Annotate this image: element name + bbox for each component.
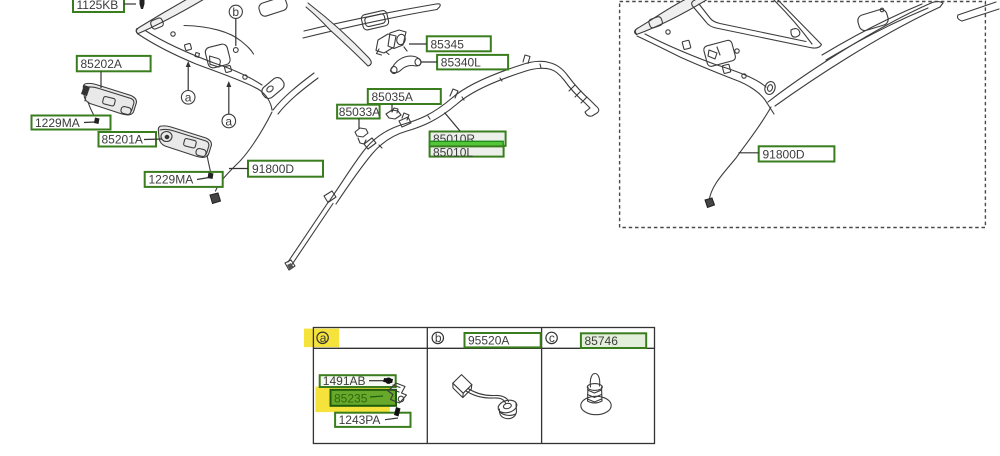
svg-text:85010L: 85010L (433, 145, 473, 159)
svg-text:85235: 85235 (334, 392, 368, 406)
svg-text:1229MA: 1229MA (149, 173, 194, 187)
svg-text:a: a (320, 331, 327, 345)
svg-text:c: c (549, 331, 555, 345)
svg-text:95520A: 95520A (468, 334, 509, 348)
svg-text:1125KB: 1125KB (77, 0, 119, 12)
svg-text:85746: 85746 (585, 334, 619, 348)
svg-text:85201A: 85201A (102, 133, 143, 147)
svg-text:a: a (225, 114, 232, 128)
svg-text:91800D: 91800D (763, 147, 805, 161)
svg-text:85202A: 85202A (81, 57, 122, 71)
svg-text:85033A: 85033A (339, 105, 380, 119)
svg-text:1491AB: 1491AB (323, 374, 366, 388)
svg-text:1243PA: 1243PA (339, 413, 381, 427)
svg-text:85340L: 85340L (441, 56, 481, 70)
svg-text:a: a (185, 91, 192, 105)
svg-text:b: b (435, 331, 442, 345)
svg-text:b: b (232, 5, 239, 19)
svg-text:85035A: 85035A (372, 90, 413, 104)
svg-text:91800D: 91800D (252, 162, 294, 176)
svg-text:85345: 85345 (431, 37, 465, 51)
svg-text:1229MA: 1229MA (35, 116, 80, 130)
